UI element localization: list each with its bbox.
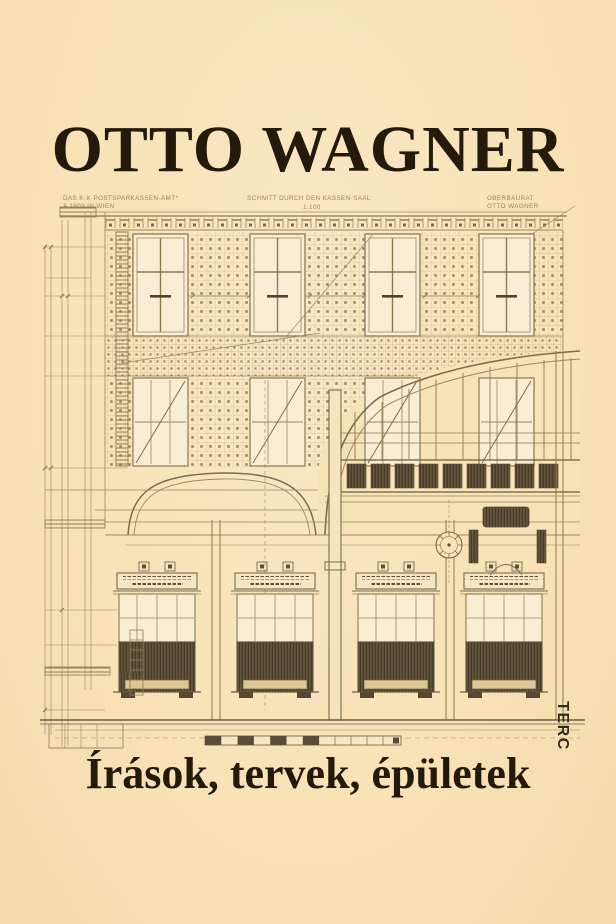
drawing-annotations: DAS K·K·POSTSPARKASSEN-AMT* A 1903 IN WI… <box>63 195 539 211</box>
book-cover: OTTO WAGNER <box>0 0 616 924</box>
publisher-logo-text: TERC <box>553 701 571 751</box>
publisher-logo: TERC <box>546 699 578 753</box>
gallery-band <box>335 460 580 492</box>
vent-grille <box>483 507 529 527</box>
annotation-left-1: DAS K·K·POSTSPARKASSEN-AMT* <box>63 195 178 202</box>
postsparkasse-section-drawing: DAS K·K·POSTSPARKASSEN-AMT* A 1903 IN WI… <box>35 190 595 750</box>
annotation-center-1: SCHNITT DURCH DEN KASSEN-SAAL <box>247 195 371 202</box>
cover-subtitle: Írások, tervek, épületek <box>0 748 616 799</box>
cover-title: OTTO WAGNER <box>0 112 616 188</box>
annotation-right-1: OBERBAURAT <box>487 195 534 202</box>
annotation-right-2: OTTO WAGNER <box>487 203 539 210</box>
architectural-drawing: DAS K·K·POSTSPARKASSEN-AMT* A 1903 IN WI… <box>35 190 595 750</box>
annotation-center-scale: 1:100 <box>303 204 321 211</box>
scale-bar <box>205 736 401 745</box>
